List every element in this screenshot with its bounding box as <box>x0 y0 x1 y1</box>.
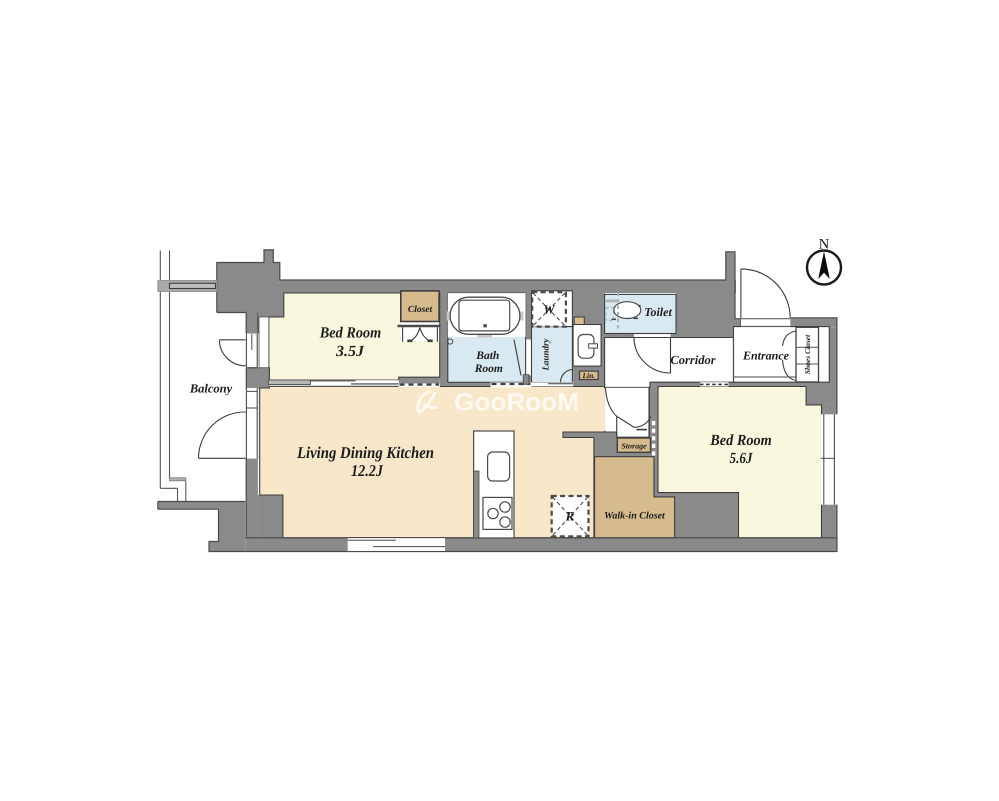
svg-text:3.5J: 3.5J <box>335 343 365 360</box>
svg-text:Lin.: Lin. <box>581 371 595 380</box>
svg-text:GooRooM: GooRooM <box>454 389 579 417</box>
svg-text:Walk-in Closet: Walk-in Closet <box>604 511 666 522</box>
svg-text:Bed Room: Bed Room <box>709 432 771 449</box>
svg-text:Laundry: Laundry <box>541 337 551 371</box>
svg-text:Shoes Closet: Shoes Closet <box>803 334 812 374</box>
svg-text:Closet: Closet <box>408 305 433 315</box>
svg-text:N: N <box>819 237 830 253</box>
svg-text:Bed Room: Bed Room <box>319 325 381 342</box>
svg-text:12.2J: 12.2J <box>351 461 384 480</box>
svg-text:Toilet: Toilet <box>644 305 672 319</box>
svg-text:5.6J: 5.6J <box>730 450 754 467</box>
svg-text:W: W <box>543 303 555 317</box>
svg-text:Storage: Storage <box>621 442 647 451</box>
svg-text:Living Dining Kitchen: Living Dining Kitchen <box>296 443 434 462</box>
svg-text:Room: Room <box>474 363 503 375</box>
svg-text:Balcony: Balcony <box>189 382 233 396</box>
svg-text:Entrance: Entrance <box>742 349 790 363</box>
svg-text:Corridor: Corridor <box>670 353 715 367</box>
svg-text:R: R <box>565 509 575 524</box>
svg-text:Bath: Bath <box>475 350 499 362</box>
